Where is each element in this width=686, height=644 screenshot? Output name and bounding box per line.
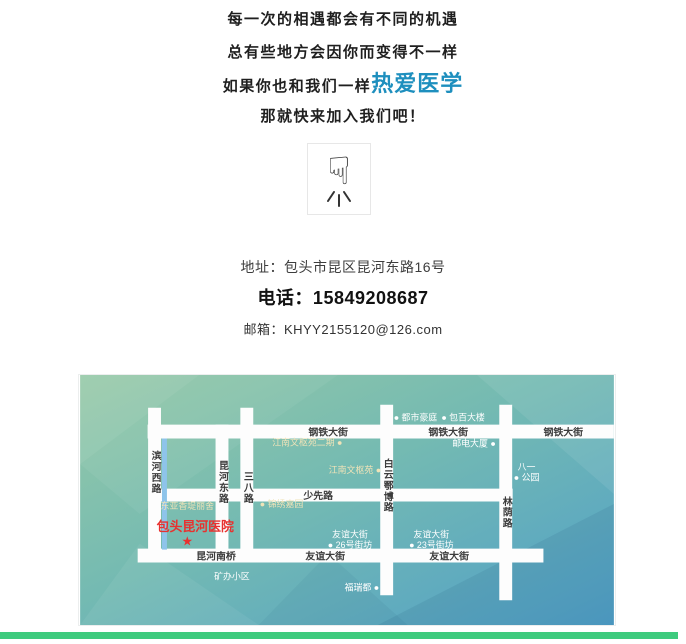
hospital-name: 包头昆河医院 bbox=[156, 519, 234, 534]
intro-line-2: 总有些地方会因你而变得不一样 bbox=[0, 41, 686, 62]
street-shaoxian: 少先路 bbox=[302, 489, 333, 502]
street-gangtie-2: 钢铁大街 bbox=[428, 426, 468, 439]
poi-dushi-haoting: ● 都市豪庭 bbox=[394, 412, 438, 423]
location-map: 钢铁大街钢铁大街钢铁大街少先路昆河南桥友谊大街友谊大街滨河西路昆河东路三八路白云… bbox=[78, 374, 616, 626]
street-youyi-2: 友谊大街 bbox=[429, 550, 469, 563]
map-svg: 钢铁大街钢铁大街钢铁大街少先路昆河南桥友谊大街友谊大街滨河西路昆河东路三八路白云… bbox=[79, 375, 615, 625]
street-baiyun-ebo-lu: 白云鄂博路 bbox=[381, 457, 393, 513]
street-kunhe-nanqiao: 昆河南桥 bbox=[196, 550, 236, 563]
poi-baobai-dalou: ● 包百大楼 bbox=[441, 412, 485, 423]
poi-kuangban-xiaoqu: 矿办小区 bbox=[214, 570, 250, 581]
poi-youdian-dasha: 邮电大厦 ● bbox=[452, 437, 495, 448]
poi-furui-du: 福瑞都 ● bbox=[345, 581, 380, 592]
intro-line-3-prefix: 如果你也和我们一样 bbox=[223, 75, 372, 96]
poi-youyi-26: 友谊大街● 26号街坊 bbox=[328, 529, 373, 550]
street-youyi-1: 友谊大街 bbox=[305, 550, 345, 563]
article-page: 每一次的相遇都会有不同的机遇 总有些地方会因你而变得不一样 如果你也和我们一样热… bbox=[0, 0, 686, 644]
intro-line-1: 每一次的相遇都会有不同的机遇 bbox=[0, 8, 686, 29]
poi-dongya-xiangdi: 东亚香堤丽舍 bbox=[161, 500, 215, 511]
pointing-down-hand-icon: ☟ bbox=[318, 148, 360, 210]
phone-line: 电话：15849208687 bbox=[0, 284, 686, 310]
poi-jiangnan-erqi: 江南文枢苑二期 ● bbox=[272, 436, 342, 447]
intro-line-3-highlight: 热爱医学 bbox=[371, 66, 463, 98]
poi-jiangnan: 江南文枢苑 ● bbox=[329, 464, 381, 475]
intro-line-3: 如果你也和我们一样热爱医学 bbox=[0, 66, 686, 98]
street-linyin-lu: 林荫路 bbox=[500, 495, 512, 529]
bottom-green-bar bbox=[0, 632, 678, 639]
street-kunhe-donglu: 昆河东路 bbox=[217, 460, 229, 504]
poi-youyi-23: 友谊大街● 23号街坊 bbox=[409, 529, 454, 550]
hospital-star: ★ bbox=[182, 534, 194, 549]
poi-jinxiu-jiayuan: ● 锦绣嘉园 bbox=[260, 498, 304, 509]
svg-text:☟: ☟ bbox=[327, 151, 350, 193]
address-line: 地址：包头市昆区昆河东路16号 bbox=[0, 257, 686, 277]
street-binhe-xilu: 滨河西路 bbox=[149, 449, 161, 494]
email-line: 邮箱：KHYY2155120@126.com bbox=[0, 319, 686, 338]
hand-icon-box: ☟ bbox=[307, 143, 371, 215]
intro-line-4: 那就快来加入我们吧！ bbox=[0, 105, 686, 126]
street-gangtie-3: 钢铁大街 bbox=[543, 426, 583, 439]
